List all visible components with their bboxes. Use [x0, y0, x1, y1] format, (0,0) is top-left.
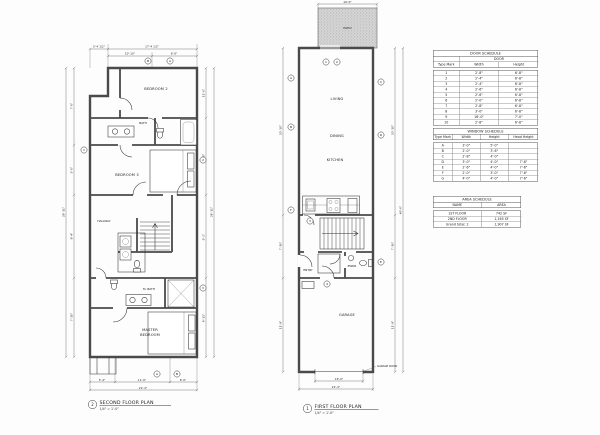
column-header: Width [453, 135, 481, 140]
second-floor-plan: 5'-4 1/2" 17'-4 1/2" 10'-10" 6'-6" 7'-6"… [62, 44, 216, 391]
first-floor-plan: 16'-0" 20'-10" 7'-10" 11'-9" 20'-10" 7'-… [279, 0, 405, 391]
fridge-icon [348, 199, 357, 213]
dimension-text: 28'-11" [62, 206, 66, 217]
dimension-text: 17'-4 1/2" [145, 45, 160, 49]
table-cell: 4'-0" [481, 176, 509, 181]
closet [318, 254, 340, 273]
porch [90, 357, 116, 374]
room-label-pwdr: PWDR [348, 264, 357, 268]
window-tag: A [167, 58, 173, 64]
column-header: Height [481, 135, 509, 140]
dimension-text: 7'-10" [279, 241, 283, 250]
room-label-master: MASTER [142, 328, 158, 332]
table-row: 102'-8"6'-8" [434, 120, 538, 125]
first-floor-caption: 1 FIRST FLOOR PLAN 1/4" = 1'-0" [303, 404, 443, 415]
caption-number: 2 [91, 402, 94, 407]
second-floor-caption: 2 SECOND FLOOR PLAN 1/4" = 1'-0" [88, 400, 228, 411]
table-cell: 10 [434, 120, 460, 125]
room-label-garage: GARAGE [339, 313, 356, 317]
dimension-text: 11'-9" [391, 320, 395, 329]
dimension-text: 16'-0" [343, 0, 352, 4]
caption-title: SECOND FLOOR PLAN [100, 400, 171, 406]
door-tag: 1 [81, 147, 87, 153]
window-tag: B [145, 58, 151, 64]
caption-scale: 1/4" = 1'-0" [100, 407, 171, 411]
area-schedule-body: 1ST FLOOR742 SF2ND FLOOR1,165 SFGrand to… [433, 211, 521, 228]
table-row: G4'-0"4'-0"7'-6" [434, 176, 538, 181]
tag-label: 3 [309, 219, 311, 223]
column-header: Width [460, 62, 500, 68]
kitchen-counter [303, 196, 360, 214]
shower-icon [168, 280, 194, 307]
window-tag: C [378, 79, 384, 85]
dimension-text: 11'-0" [138, 378, 147, 382]
column-header: Head Height [509, 135, 539, 140]
dimension-text: 11'-9" [279, 320, 283, 329]
tag-label: F [290, 208, 292, 212]
tag-label: E [380, 260, 382, 264]
garage-door-annotation: GARAGE DOOR [377, 364, 397, 368]
table-cell: 7'-6" [509, 176, 539, 181]
bathtub-icon [181, 120, 197, 146]
stairs-icon [140, 222, 170, 250]
table-cell: 6'-8" [499, 120, 539, 125]
dimension-text: 7'-10" [391, 241, 395, 250]
table-cell: G [434, 176, 453, 181]
room-label-living: LIVING [331, 97, 344, 101]
tag-label: 3 [202, 286, 204, 290]
dimension-text: 7'-10" [70, 312, 74, 321]
room-label-bath: BATH [139, 121, 147, 125]
door-tag: 3 [307, 218, 313, 224]
room-label-mbath: M. BATH [143, 287, 155, 291]
dimension-text: 6'-2" [202, 233, 206, 240]
column-header: Type Mark [434, 62, 460, 68]
window-schedule-body: A3'-0"5'-0"B2'-0"3'-6"C2'-8"4'-0"D3'-0"4… [433, 143, 538, 182]
tag-label: 2 [336, 60, 338, 64]
window-tag: B [174, 371, 180, 377]
door-tag: 2 [334, 59, 340, 65]
table-cell: 4'-0" [453, 176, 481, 181]
dimension-text: 20'-10" [391, 124, 395, 135]
tag-label: B [176, 372, 178, 376]
table-cell: 1,907 SF [482, 222, 522, 227]
dimension-text: 8'-4" [70, 232, 74, 239]
caption-scale: 1/4" = 1'-0" [315, 411, 379, 415]
column-header: NAME [434, 203, 482, 208]
window-tag: F [288, 207, 294, 213]
dimension-text: 10'-10" [125, 52, 136, 56]
entry-door-opening [298, 255, 301, 267]
dimension-text: 5'-4 1/2" [93, 45, 106, 49]
dimension-text: 20'-10" [279, 124, 283, 135]
dimension-text: 40'-6" [399, 205, 403, 214]
door-tag: 2 [200, 157, 206, 163]
column-header: Height [499, 62, 539, 68]
dimension-text: 6'-0" [180, 378, 187, 382]
sink-icon [348, 255, 353, 260]
dimension-text: 22'-4" [139, 386, 148, 390]
room-label-patio: PATIO [343, 26, 352, 30]
dimension-lines: 16'-0" 20'-10" 7'-10" 11'-9" 20'-10" 7'-… [279, 0, 405, 391]
dimension-text: 11'-0" [202, 88, 206, 97]
window-tag: E [378, 259, 384, 265]
vanity-sinks-icon [126, 295, 151, 306]
door-schedule-body: 12'-8"6'-8"22'-4"6'-8"32'-4"6'-8"42'-6"6… [433, 70, 538, 126]
table-cell: 2'-8" [460, 120, 500, 125]
garage-step [302, 282, 314, 289]
window-tag: D [378, 132, 384, 138]
tag-label: 1 [325, 60, 327, 64]
door-tag: 3 [200, 285, 206, 291]
window-tag: A [288, 75, 294, 81]
window-tag: B [288, 124, 294, 130]
caption-number-badge: 1 [303, 404, 312, 413]
bed-icon [150, 150, 196, 192]
room-label-hallway: HALLWAY [97, 219, 111, 223]
tag-label: C [380, 80, 382, 84]
dimension-text: 28'-11" [210, 206, 214, 217]
stairs-icon [320, 218, 364, 249]
window-schedule: WINDOW SCHEDULE Type Mark Width Height H… [433, 128, 538, 182]
dimension-text: 6'-6" [171, 52, 178, 56]
toilet-icon [134, 260, 141, 272]
toilet-icon [111, 280, 118, 290]
room-label-kitchen: KITCHEN [327, 158, 344, 162]
door-schedule: DOOR SCHEDULE DOOR Type Mark Width Heigh… [433, 50, 538, 126]
table-row: Grand total: 21,907 SF [434, 222, 521, 227]
room-label-bedroom2: BEDROOM 2 [144, 87, 168, 91]
room-label-dining: DINING [330, 134, 344, 138]
caption-title: FIRST FLOOR PLAN [315, 404, 379, 410]
toilet-icon [359, 260, 372, 267]
table-cell: Grand total: 2 [434, 222, 482, 227]
dimension-text: 4'-11" [202, 313, 206, 322]
door-tag: 1 [323, 59, 329, 65]
range-icon [327, 199, 340, 213]
tag-label: B [147, 59, 149, 63]
area-schedule: AREA SCHEDULE NAME AREA 1ST FLOOR742 SF2… [433, 196, 521, 228]
garage-door-opening [315, 370, 363, 375]
washer-dryer-icon [120, 236, 131, 260]
dimension-text: 5'-4" [99, 378, 106, 382]
door-tag: 4 [324, 281, 330, 287]
room-label-master: BEDROOM [140, 333, 160, 337]
dimension-text: 16'-0" [335, 377, 344, 381]
room-label-bedroom3: BEDROOM 3 [115, 173, 139, 177]
tag-label: 2 [202, 158, 204, 162]
tag-label: 1 [83, 148, 85, 152]
caption-number: 1 [306, 406, 309, 411]
column-header: Type Mark [434, 135, 453, 140]
room-label-entry: ENTRY [303, 268, 313, 272]
caption-number-badge: 2 [88, 400, 97, 409]
column-header: AREA [482, 203, 522, 208]
vanity-sinks-icon [108, 126, 134, 137]
tag-label: 4 [326, 282, 328, 286]
dimension-text: 22'-4" [332, 385, 341, 389]
tag-label: B [290, 125, 292, 129]
drawing-sheet: 5'-4 1/2" 17'-4 1/2" 10'-10" 6'-6" 7'-6"… [0, 0, 600, 435]
toilet-icon [157, 129, 164, 139]
dimension-text: 7'-6" [70, 102, 74, 109]
window-tag: A [154, 371, 160, 377]
patio-door-opening [320, 46, 340, 51]
dimension-text: 5'-0" [70, 166, 74, 173]
